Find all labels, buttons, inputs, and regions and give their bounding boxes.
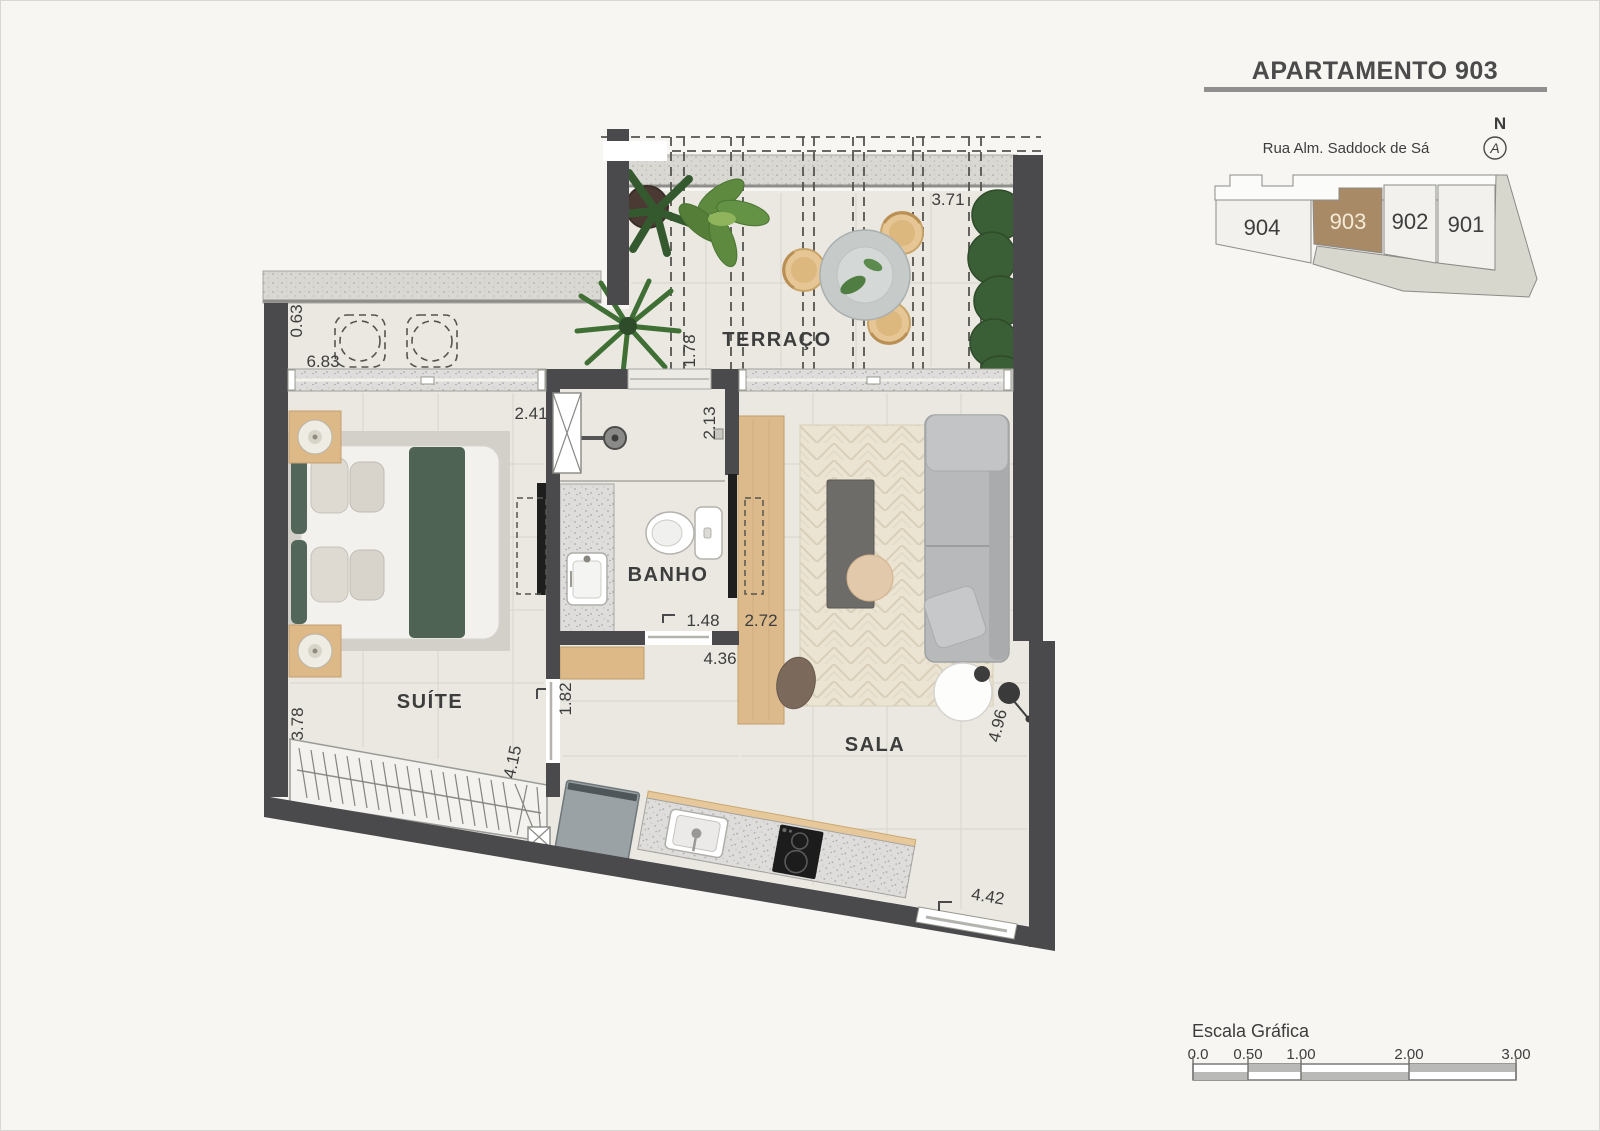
nightstand-top xyxy=(289,411,341,463)
unit-label-901: 901 xyxy=(1448,212,1485,237)
dim-hall-length: 4.36 xyxy=(703,649,736,668)
bath-counter xyxy=(560,484,614,634)
dim-balcony-depth: 0.63 xyxy=(287,304,306,337)
scale-tick-0: 0.0 xyxy=(1188,1046,1209,1063)
room-label-suite: SUÍTE xyxy=(397,690,463,713)
suite-window xyxy=(288,369,546,391)
cooktop xyxy=(772,824,824,879)
hall-cabinet xyxy=(560,647,644,679)
north-glyph: A xyxy=(1489,140,1499,156)
dim-bath-door: 1.48 xyxy=(686,611,719,630)
terrace-access-opening xyxy=(603,141,667,161)
dim-suite-door: 1.82 xyxy=(556,682,575,715)
bed-throw xyxy=(409,447,465,638)
unit-label-902: 902 xyxy=(1392,209,1429,234)
scale-bar: Escala Gráfica 0.0 0.50 1.00 2.00 3.00 xyxy=(1188,1021,1531,1080)
street-label: Rua Alm. Saddock de Sá xyxy=(1263,140,1430,157)
windows xyxy=(288,369,1013,391)
room-label-terrace: TERRAÇO xyxy=(722,329,831,351)
dim-balcony-length: 6.83 xyxy=(306,352,339,371)
page-title: APARTAMENTO 903 xyxy=(1252,57,1498,85)
wall-right-lower xyxy=(1029,641,1055,947)
sala-sliding-door xyxy=(739,369,1013,391)
dim-terrace-depth: 1.78 xyxy=(680,334,699,367)
wall-bath-sala xyxy=(725,389,739,475)
suite-furniture xyxy=(284,411,510,677)
unit-label-904: 904 xyxy=(1244,215,1281,240)
title-underline xyxy=(1204,87,1547,92)
wall-right-upper xyxy=(1013,155,1043,641)
rattan-chair xyxy=(783,249,825,291)
dim-tv-panel: 2.72 xyxy=(744,611,777,630)
sofa xyxy=(922,415,1009,662)
floorplan-page: TERRAÇO SUÍTE BANHO SALA 3.71 1.78 0.63 … xyxy=(0,0,1600,1131)
duct-shaft xyxy=(553,393,581,473)
room-label-bath: BANHO xyxy=(628,564,709,586)
room-label-living: SALA xyxy=(845,734,905,756)
dim-suite-depth: 3.78 xyxy=(288,707,307,740)
sala-furniture xyxy=(738,415,1033,724)
keyplan: Rua Alm. Saddock de Sá N A 904 903 902 9… xyxy=(1215,114,1537,297)
unit-label-903: 903 xyxy=(1330,209,1367,234)
north-arrow-icon: N A xyxy=(1484,114,1506,159)
floorplan-canvas: TERRAÇO SUÍTE BANHO SALA 3.71 1.78 0.63 … xyxy=(1,1,1600,1131)
dim-bath-depth: 2.13 xyxy=(700,406,719,439)
dim-terrace-width: 3.71 xyxy=(931,190,964,209)
nightstand-bottom xyxy=(289,625,341,677)
north-label: N xyxy=(1494,114,1506,133)
pouf xyxy=(847,555,893,601)
header: APARTAMENTO 903 xyxy=(1204,57,1547,92)
wall-left xyxy=(264,303,288,797)
dim-suite-width: 2.41 xyxy=(514,404,547,423)
scale-bar-label: Escala Gráfica xyxy=(1192,1021,1310,1041)
bath-window xyxy=(628,369,711,389)
